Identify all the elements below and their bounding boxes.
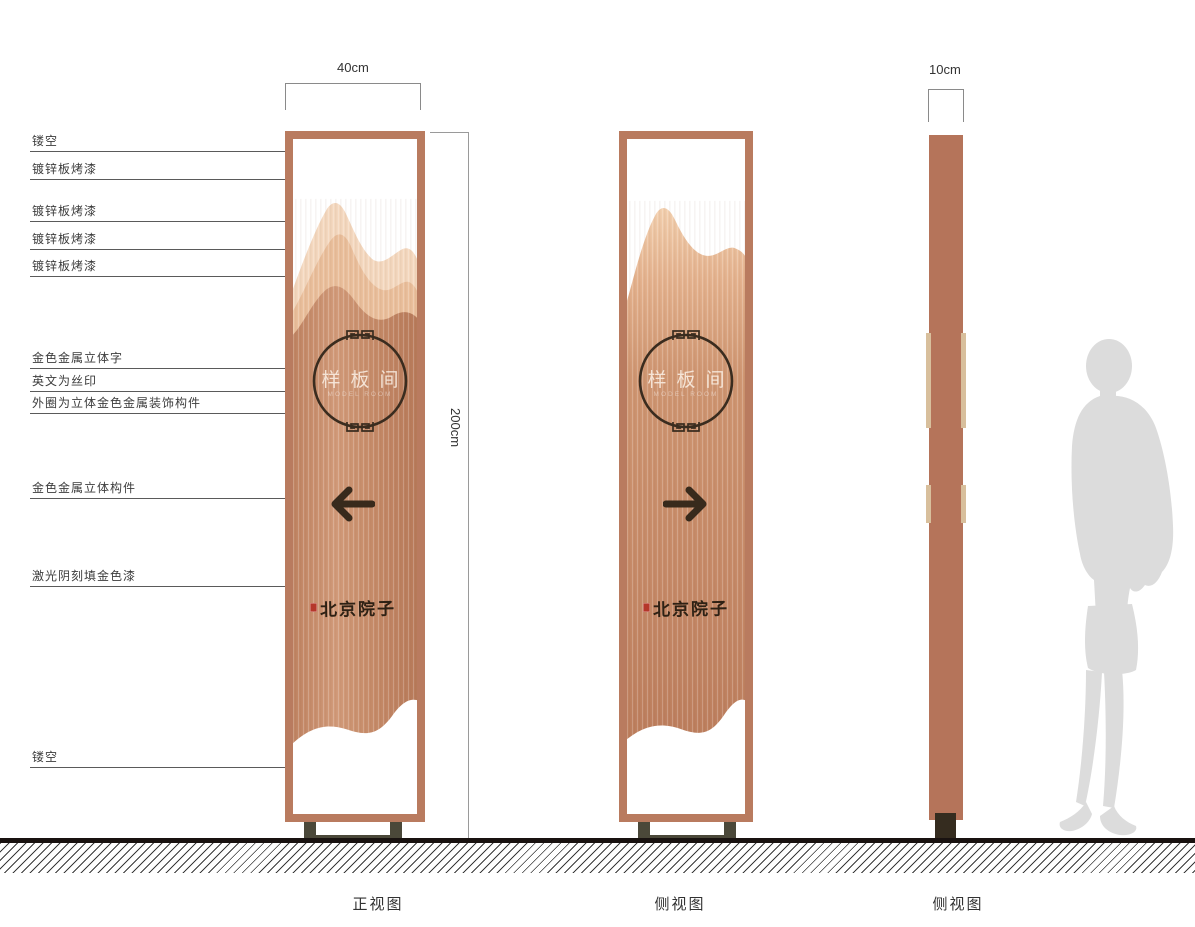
caption-side-view-1: 侧视图 — [620, 893, 740, 914]
side1-circle-english: MODEL ROOM — [634, 391, 738, 398]
dimension-width-bracket — [285, 83, 421, 110]
dimension-height-line — [468, 132, 469, 843]
callout-hollow-bottom: 镂空 — [30, 749, 303, 768]
dimension-depth-bracket — [928, 89, 964, 122]
design-drawing-canvas: 镂空 镀锌板烤漆 镀锌板烤漆 镀锌板烤漆 镀锌板烤漆 金色金属立体字 英文为丝印… — [0, 0, 1195, 927]
profile-trim-arrow — [926, 485, 931, 523]
front-panel-artwork — [293, 139, 417, 814]
ground-hatch — [0, 843, 1195, 873]
front-circle-text: 样板间 — [308, 365, 412, 392]
seal-stamp-icon — [643, 603, 650, 612]
side1-circle-text: 样板间 — [634, 365, 738, 392]
profile-trim-circle-r — [961, 333, 966, 428]
profile-trim-circle — [926, 333, 931, 428]
front-circle-english: MODEL ROOM — [308, 391, 412, 398]
callout-outer-ring-ornament: 外圈为立体金色金属装饰构件 — [30, 395, 311, 414]
sign-front-view — [285, 131, 425, 822]
side1-brand-calligraphy: 北京院子 — [643, 596, 729, 618]
sign-side-view-1 — [619, 131, 753, 822]
callout-english-silkscreen: 英文为丝印 — [30, 373, 325, 392]
caption-front-view: 正视图 — [318, 893, 438, 914]
side1-circle-emblem: 样板间 MODEL ROOM — [634, 329, 738, 433]
front-circle-emblem: 样板间 MODEL ROOM — [308, 329, 412, 433]
sign-side-profile — [929, 135, 963, 820]
dimension-height-label: 200cm — [448, 408, 463, 447]
callout-hollow-top: 镂空 — [30, 133, 307, 152]
seal-stamp-icon — [310, 603, 317, 612]
human-scale-silhouette — [1030, 336, 1180, 840]
callout-paint-frame: 镀锌板烤漆 — [30, 161, 288, 180]
dimension-width-label: 40cm — [337, 60, 369, 75]
callout-paint-mountain-2: 镀锌板烤漆 — [30, 231, 292, 250]
profile-foot — [935, 813, 956, 840]
side1-panel-artwork — [627, 139, 745, 814]
callout-paint-mountain-1: 镀锌板烤漆 — [30, 203, 323, 222]
front-brand-calligraphy: 北京院子 — [310, 596, 396, 618]
callout-paint-mountain-3: 镀锌板烤漆 — [30, 258, 292, 277]
dimension-height-tick-top — [430, 132, 468, 133]
caption-side-view-2: 侧视图 — [898, 893, 1018, 914]
dimension-depth-label: 10cm — [929, 62, 961, 77]
right-arrow-icon — [663, 484, 711, 524]
left-arrow-icon — [327, 484, 375, 524]
profile-trim-arrow-r — [961, 485, 966, 523]
